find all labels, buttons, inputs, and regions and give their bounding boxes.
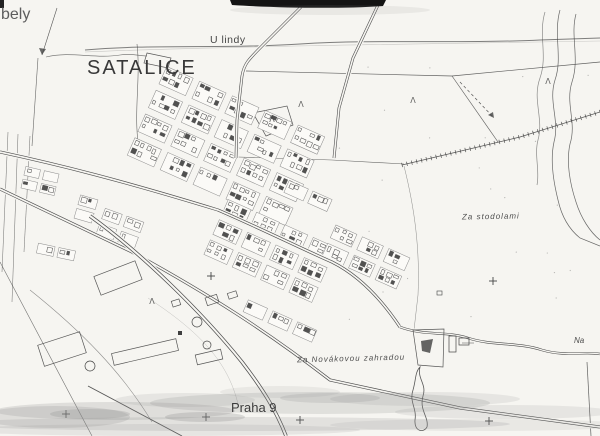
district-label-praha-9: Praha 9 <box>231 400 277 415</box>
svg-text:Λ: Λ <box>269 115 275 124</box>
field-name-u-lindy: U lindy <box>210 34 246 46</box>
svg-text:Λ: Λ <box>298 100 304 109</box>
field-name-za-stodolami: Za stodolami <box>462 211 520 221</box>
scan-smudge <box>50 409 130 419</box>
neighbor-district-label: bely <box>1 6 30 24</box>
town-name-satalice: SATALICE <box>87 57 197 80</box>
svg-text:Λ: Λ <box>410 96 416 105</box>
field-name-na-cutoff: Na <box>574 336 584 345</box>
svg-text:Λ: Λ <box>149 297 155 306</box>
svg-text:Λ: Λ <box>545 77 551 86</box>
scan-smudge <box>230 5 430 15</box>
scanned-map-page: ΛΛΛΛΛ bely U lindy SATALICE Za stodolami… <box>0 0 600 436</box>
scan-smudge <box>280 393 380 403</box>
